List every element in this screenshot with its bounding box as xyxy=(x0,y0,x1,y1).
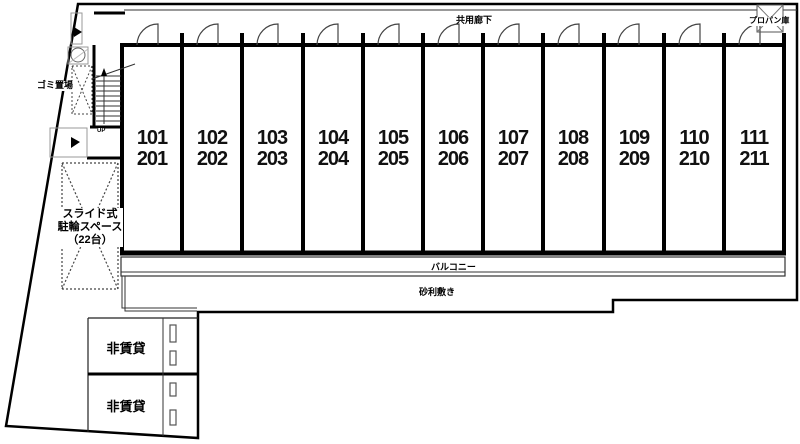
garbage-label: ゴミ置場 xyxy=(37,81,73,91)
door-icon xyxy=(558,24,579,45)
room-label-107-207: 107 207 xyxy=(483,128,543,170)
nonrental-lower-label: 非賃貸 xyxy=(89,396,163,415)
door-icon xyxy=(197,24,218,45)
door-icon xyxy=(257,24,278,45)
garbage-area-box xyxy=(72,66,92,114)
room-number: 104 xyxy=(303,128,363,149)
room-number: 201 xyxy=(122,149,182,170)
room-number: 105 xyxy=(363,128,423,149)
room-number: 107 xyxy=(483,128,543,149)
stair-break-line xyxy=(92,64,135,79)
room-number: 209 xyxy=(604,149,664,170)
room-number: 208 xyxy=(543,149,603,170)
floor-plan: 共用廊下 プロパン庫 ゴミ置場 UP バルコニー 砂利敷き スライド式 駐輪スペ… xyxy=(0,0,800,444)
door-icon xyxy=(498,24,519,45)
room-number: 103 xyxy=(242,128,302,149)
room-number: 204 xyxy=(303,149,363,170)
room-label-106-206: 106 206 xyxy=(423,128,483,170)
room-label-111-211: 111 211 xyxy=(724,128,784,170)
door-icon xyxy=(317,24,338,45)
room-number: 203 xyxy=(242,149,302,170)
room-number: 202 xyxy=(182,149,242,170)
balcony-label: バルコニー xyxy=(431,263,476,273)
room-label-109-209: 109 209 xyxy=(604,128,664,170)
room-number: 111 xyxy=(724,128,784,149)
room-number: 106 xyxy=(423,128,483,149)
room-number: 206 xyxy=(423,149,483,170)
door-icon xyxy=(438,24,459,45)
room-number: 211 xyxy=(724,149,784,170)
propane-label: プロパン庫 xyxy=(749,17,789,26)
room-label-103-203: 103 203 xyxy=(242,128,302,170)
room-label-102-202: 102 202 xyxy=(182,128,242,170)
room-door-icons xyxy=(137,24,760,45)
nonrental-block xyxy=(88,318,198,436)
room-label-105-205: 105 205 xyxy=(363,128,423,170)
room-number: 108 xyxy=(543,128,603,149)
arrow-right-icon xyxy=(71,137,80,148)
stair-up-label: UP xyxy=(97,128,105,135)
corridor-label: 共用廊下 xyxy=(456,16,492,26)
room-label-101-201: 101 201 xyxy=(122,128,182,170)
bicycle-label-line2: 駐輪スペース xyxy=(57,221,123,234)
room-number: 109 xyxy=(604,128,664,149)
bicycle-label-line3: （22台） xyxy=(57,234,123,247)
door-icon xyxy=(618,24,639,45)
room-number: 110 xyxy=(664,128,724,149)
room-number: 101 xyxy=(122,128,182,149)
room-number: 102 xyxy=(182,128,242,149)
bicycle-parking-label: スライド式 駐輪スペース （22台） xyxy=(57,208,123,247)
stair-up-arrowhead xyxy=(101,68,107,76)
gravel-label: 砂利敷き xyxy=(419,288,455,298)
room-number: 207 xyxy=(483,149,543,170)
room-label-108-208: 108 208 xyxy=(543,128,603,170)
arrow-right-icon xyxy=(74,27,82,37)
nonrental-upper-label: 非賃貸 xyxy=(89,338,163,357)
door-icon xyxy=(679,24,700,45)
room-label-110-210: 110 210 xyxy=(664,128,724,170)
staircase xyxy=(90,45,135,127)
room-number: 205 xyxy=(363,149,423,170)
door-icon xyxy=(137,24,158,45)
room-label-104-204: 104 204 xyxy=(303,128,363,170)
door-icon xyxy=(378,24,399,45)
room-number: 210 xyxy=(664,149,724,170)
bicycle-label-line1: スライド式 xyxy=(57,208,123,221)
